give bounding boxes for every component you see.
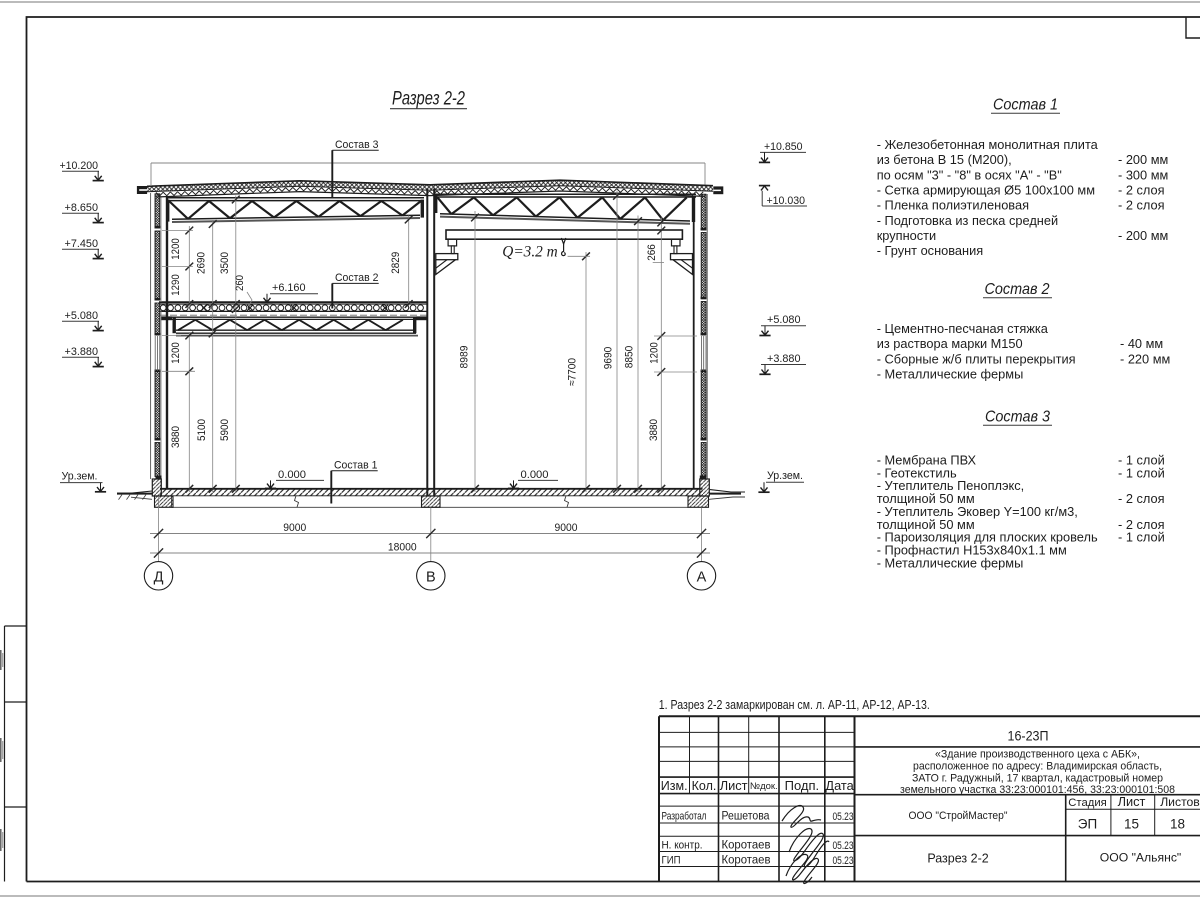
svg-text:Разрез 2-2: Разрез 2-2 (392, 89, 465, 110)
svg-text:- Грунт основания: - Грунт основания (877, 243, 984, 258)
svg-text:Кол.: Кол. (692, 779, 717, 793)
svg-text:+7.450: +7.450 (65, 238, 99, 250)
svg-text:+5.080: +5.080 (767, 314, 801, 326)
svg-text:+3.880: +3.880 (65, 346, 99, 358)
svg-text:0.000: 0.000 (521, 469, 549, 481)
svg-text:крупности: крупности (877, 228, 937, 243)
svg-text:из раствора марки М150: из раствора марки М150 (877, 336, 1023, 351)
svg-text:- 1 слой: - 1 слой (1118, 530, 1165, 545)
svg-text:- 40 мм: - 40 мм (1120, 336, 1163, 351)
svg-text:Н. контр.: Н. контр. (662, 840, 703, 852)
svg-text:ООО "СтройМастер": ООО "СтройМастер" (909, 810, 1008, 822)
svg-text:Стадия: Стадия (1068, 797, 1107, 809)
svg-text:1200: 1200 (170, 238, 182, 260)
svg-text:Коротаев: Коротаев (722, 853, 771, 867)
svg-text:- Металлические фермы: - Металлические фермы (877, 555, 1024, 570)
svg-text:- 2 слоя: - 2 слоя (1118, 198, 1165, 213)
svg-text:0.000: 0.000 (278, 469, 306, 481)
svg-text:- 1 слой: - 1 слой (1118, 465, 1165, 480)
svg-text:Состав 3: Состав 3 (335, 139, 378, 151)
svg-text:9000: 9000 (283, 522, 306, 534)
svg-text:- 300 мм: - 300 мм (1118, 167, 1168, 182)
svg-text:«Здание производственного цеха: «Здание производственного цеха с АБК», (935, 749, 1140, 761)
svg-text:Ур.зем.: Ур.зем. (767, 470, 803, 482)
svg-text:- Железобетонная монолитная п: - Железобетонная монолитная плита (877, 137, 1099, 152)
svg-text:Разработал: Разработал (662, 811, 707, 823)
svg-text:Решетова: Решетова (722, 809, 770, 823)
svg-text:1200: 1200 (170, 342, 182, 364)
svg-text:+10.200: +10.200 (60, 160, 99, 172)
svg-text:05.23: 05.23 (833, 811, 854, 823)
svg-text:А: А (697, 569, 707, 585)
svg-text:- Сетка армирующая Ø5 100х100: - Сетка армирующая Ø5 100х100 мм (877, 182, 1095, 197)
svg-text:8850: 8850 (624, 346, 636, 369)
svg-text:+8.650: +8.650 (65, 202, 99, 214)
svg-text:+10.030: +10.030 (767, 195, 806, 207)
svg-text:Состав 1: Состав 1 (993, 97, 1058, 114)
svg-text:3880: 3880 (648, 419, 660, 441)
svg-text:В: В (426, 569, 436, 585)
svg-text:Лист: Лист (720, 778, 748, 793)
svg-text:16-23П: 16-23П (1008, 729, 1049, 744)
svg-text:5900: 5900 (219, 419, 231, 441)
svg-text:05.23: 05.23 (833, 855, 854, 867)
svg-text:2690: 2690 (195, 252, 207, 274)
svg-text:ЗАТО г. Радужный, 17 квартал,: ЗАТО г. Радужный, 17 квартал, кадастровы… (912, 772, 1163, 784)
svg-text:- Металлические фермы: - Металлические фермы (877, 366, 1024, 381)
svg-text:Коротаев: Коротаев (722, 838, 771, 852)
svg-text:Д: Д (154, 569, 164, 585)
svg-text:Q=3.2 m: Q=3.2 m (502, 244, 558, 261)
svg-text:- 2 слоя: - 2 слоя (1118, 182, 1165, 197)
svg-text:2829: 2829 (390, 252, 402, 274)
svg-text:15: 15 (1124, 817, 1139, 832)
svg-text:Листов: Листов (1160, 795, 1200, 809)
svg-text:9000: 9000 (555, 522, 578, 534)
svg-text:260: 260 (234, 275, 246, 291)
svg-text:+6.160: +6.160 (272, 282, 306, 294)
svg-text:8989: 8989 (459, 346, 471, 369)
svg-text:ГИП: ГИП (662, 855, 681, 867)
svg-text:Состав 2: Состав 2 (985, 281, 1050, 298)
svg-text:05.23: 05.23 (833, 840, 854, 852)
svg-text:- 200 мм: - 200 мм (1118, 228, 1168, 243)
svg-text:Подп.: Подп. (785, 778, 820, 793)
svg-text:ЭП: ЭП (1078, 817, 1097, 832)
svg-text:+5.080: +5.080 (65, 310, 99, 322)
svg-text:Состав 2: Состав 2 (335, 272, 378, 284)
svg-text:1290: 1290 (170, 274, 182, 296)
svg-text:9690: 9690 (603, 347, 615, 370)
svg-text:Разрез 2-2: Разрез 2-2 (927, 852, 988, 866)
svg-text:5100: 5100 (196, 419, 208, 441)
svg-text:3880: 3880 (170, 426, 182, 448)
svg-text:Ур.зем.: Ур.зем. (62, 471, 98, 483)
svg-text:- Пленка полиэтиленовая: - Пленка полиэтиленовая (877, 198, 1029, 213)
svg-text:Изм.: Изм. (661, 779, 688, 793)
svg-text:ООО "Альянс": ООО "Альянс" (1100, 851, 1182, 865)
svg-text:+10.850: +10.850 (764, 141, 803, 153)
svg-text:Состав 1: Состав 1 (334, 459, 377, 471)
svg-text:- 2 слоя: - 2 слоя (1118, 491, 1165, 506)
svg-text:Состав 3: Состав 3 (985, 409, 1050, 426)
svg-text:- 220 мм: - 220 мм (1120, 351, 1170, 366)
svg-text:- 200 мм: - 200 мм (1118, 152, 1168, 167)
svg-text:3500: 3500 (219, 252, 231, 274)
svg-text:№док.: №док. (750, 781, 778, 792)
svg-text:по осям "3" - "8" в осях "А" -: по осям "3" - "8" в осях "А" - "В" (877, 167, 1062, 182)
svg-text:1200: 1200 (649, 342, 661, 364)
svg-text:Дата: Дата (825, 778, 854, 793)
svg-text:≈7700: ≈7700 (567, 358, 579, 386)
svg-text:18: 18 (1170, 817, 1185, 832)
svg-text:расположенное по адресу: Влади: расположенное по адресу: Владимирская об… (913, 760, 1162, 772)
svg-text:18000: 18000 (388, 542, 417, 554)
svg-text:из бетона В 15 (М200),: из бетона В 15 (М200), (877, 152, 1012, 167)
svg-text:Лист: Лист (1118, 794, 1146, 809)
svg-text:1. Разрез 2-2 замаркирован см.: 1. Разрез 2-2 замаркирован см. л. АР-11,… (659, 697, 930, 712)
svg-text:- Цементно-песчаная стяжка: - Цементно-песчаная стяжка (877, 321, 1049, 336)
svg-text:- Сборные ж/б плиты перекрытия: - Сборные ж/б плиты перекрытия (877, 351, 1076, 366)
svg-text:- Подготовка из песка средней: - Подготовка из песка средней (877, 213, 1058, 228)
svg-text:+3.880: +3.880 (767, 353, 801, 365)
svg-text:266: 266 (646, 244, 658, 261)
